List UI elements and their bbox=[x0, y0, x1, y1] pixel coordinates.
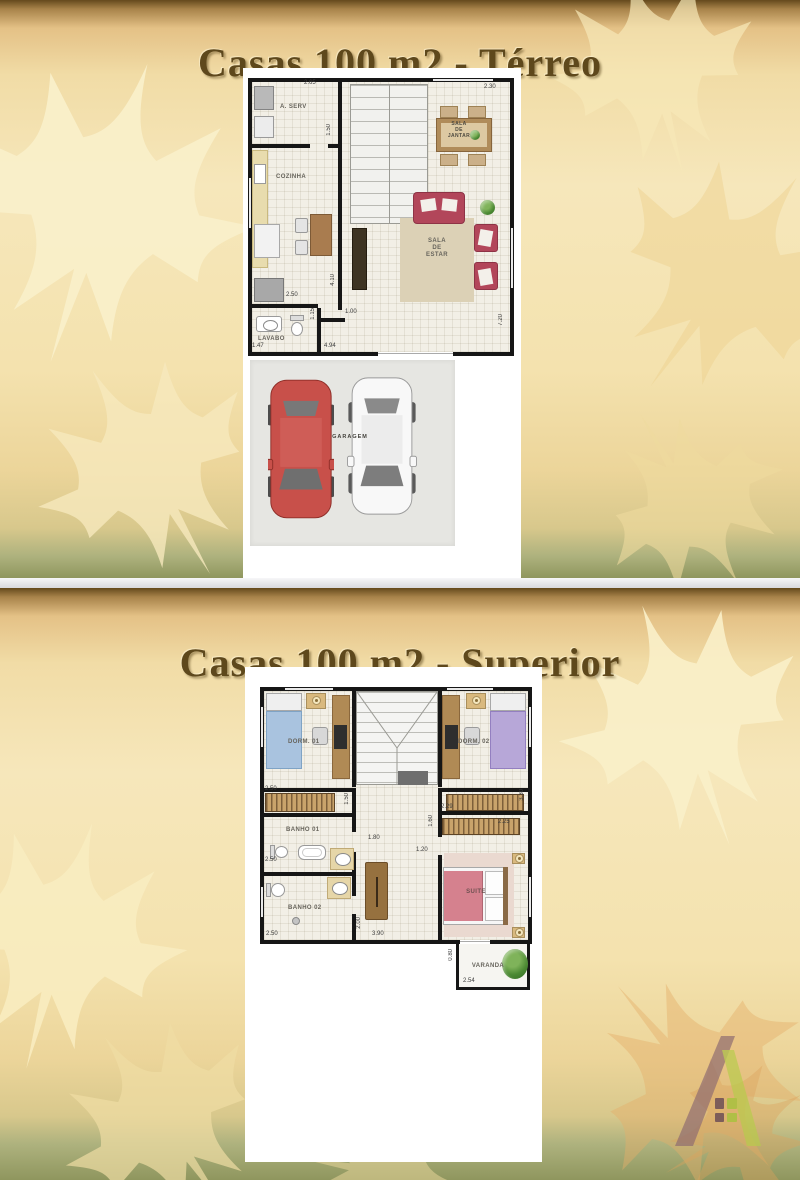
bed-dorm2 bbox=[490, 711, 526, 769]
wall bbox=[453, 352, 514, 356]
armchair bbox=[474, 262, 498, 290]
dim-label: 2.54 bbox=[463, 978, 475, 984]
wall bbox=[338, 78, 342, 310]
kitchen-sink bbox=[254, 164, 266, 184]
garage-door-opening bbox=[378, 353, 453, 354]
floorplan-panel-terreo: A. SERV COZINHA bbox=[243, 68, 521, 578]
white-car bbox=[345, 376, 419, 516]
dim-label: 2.25 bbox=[498, 819, 510, 825]
dining-chair bbox=[440, 106, 458, 118]
plant-icon bbox=[470, 130, 480, 140]
wall bbox=[510, 78, 514, 356]
wall bbox=[438, 811, 532, 815]
lavabo-sink bbox=[256, 316, 282, 332]
dining-chair bbox=[468, 154, 486, 166]
window bbox=[529, 707, 531, 747]
floorplan-superior: DORM. 01 DORM. 02 bbox=[260, 687, 532, 992]
room-label-banho1: BANHO 01 bbox=[286, 827, 320, 834]
dim-label: 1.50 bbox=[326, 124, 332, 136]
wall bbox=[317, 308, 321, 356]
poster-page: Casas 100 m2 - Térreo bbox=[0, 0, 800, 1180]
sofa bbox=[413, 192, 465, 224]
fridge bbox=[254, 224, 280, 258]
window bbox=[249, 178, 251, 228]
wardrobe-dorm2 bbox=[446, 794, 524, 811]
bed-pillow bbox=[490, 693, 526, 711]
dim-label: 1.80 bbox=[368, 835, 380, 841]
dining-chair bbox=[440, 154, 458, 166]
room-label-suite: SUITE bbox=[456, 889, 496, 896]
dim-label: 2.29 bbox=[441, 804, 453, 810]
window bbox=[433, 79, 493, 81]
slide-superior: Casas 100 m2 - Superior bbox=[0, 588, 800, 1180]
dim-label: 4.94 bbox=[324, 343, 336, 349]
room-label-varanda: VARANDA bbox=[462, 963, 514, 970]
window bbox=[285, 688, 333, 690]
wall bbox=[490, 940, 532, 944]
dim-label: 0.80 bbox=[448, 949, 454, 961]
toilet bbox=[291, 322, 303, 336]
wall bbox=[248, 304, 318, 308]
dim-label: 2.50 bbox=[265, 857, 277, 863]
room-label-banho2: BANHO 02 bbox=[288, 905, 322, 912]
bed-pillow bbox=[266, 693, 302, 711]
builder-house-logo bbox=[675, 1036, 765, 1146]
floorplan-panel-superior: DORM. 01 DORM. 02 bbox=[245, 667, 542, 1162]
hall-cabinet bbox=[365, 862, 388, 920]
kitchen-table bbox=[310, 214, 332, 256]
bathtub bbox=[298, 845, 326, 860]
bed-suite bbox=[443, 867, 508, 925]
wall bbox=[260, 872, 356, 876]
wall bbox=[248, 352, 378, 356]
dim-label: 1.15 bbox=[310, 308, 316, 320]
living-rug bbox=[400, 218, 474, 302]
kitchen-chair bbox=[295, 218, 308, 233]
dim-label: 2.50 bbox=[265, 786, 277, 792]
wall bbox=[352, 876, 356, 896]
dim-label: 1.20 bbox=[416, 847, 428, 853]
kitchen-chair bbox=[295, 240, 308, 255]
lamp-icon bbox=[472, 696, 481, 705]
tv bbox=[445, 725, 458, 749]
dim-label: 4.10 bbox=[330, 274, 336, 286]
room-label-garagem: GARAGEM bbox=[300, 434, 400, 440]
lamp-icon bbox=[515, 928, 524, 937]
wall bbox=[456, 944, 459, 990]
wall bbox=[248, 144, 310, 148]
dim-label: 2.50 bbox=[266, 931, 278, 937]
wall bbox=[438, 788, 532, 792]
laundry-tub bbox=[254, 116, 274, 138]
toilet bbox=[271, 883, 285, 897]
wall bbox=[260, 813, 356, 817]
wall bbox=[438, 855, 442, 940]
armchair bbox=[474, 224, 498, 252]
dim-label: 2.00 bbox=[356, 917, 362, 929]
dim-label: 3.30 bbox=[519, 789, 525, 801]
dim-label: 1.60 bbox=[428, 815, 434, 827]
wall bbox=[321, 318, 345, 322]
toilet-tank bbox=[290, 315, 304, 321]
stair-landing bbox=[398, 771, 428, 785]
tv bbox=[334, 725, 347, 749]
sideboard bbox=[352, 228, 367, 290]
shower-head bbox=[292, 917, 300, 925]
dim-label: 3.90 bbox=[372, 931, 384, 937]
lamp-icon bbox=[312, 696, 321, 705]
dim-label: 1.00 bbox=[345, 309, 357, 315]
room-label-sala-estar: SALA DE ESTAR bbox=[416, 238, 458, 259]
window bbox=[261, 887, 263, 917]
room-label-dorm2: DORM. 02 bbox=[458, 739, 490, 746]
garage-area: GARAGEM bbox=[250, 360, 455, 546]
room-label-dorm1: DORM. 01 bbox=[288, 739, 320, 746]
wall bbox=[260, 940, 460, 944]
dim-label: 1.50 bbox=[344, 793, 350, 805]
lamp-icon bbox=[515, 854, 524, 863]
red-car bbox=[268, 372, 334, 526]
slide-terreo: Casas 100 m2 - Térreo bbox=[0, 0, 800, 578]
dim-label: 2.50 bbox=[286, 292, 298, 298]
wall bbox=[328, 144, 342, 148]
window bbox=[529, 877, 531, 917]
window bbox=[261, 707, 263, 747]
window bbox=[447, 688, 493, 690]
slide-divider bbox=[0, 578, 800, 588]
washing-machine bbox=[254, 86, 274, 110]
plant-icon bbox=[480, 200, 495, 215]
dining-chair bbox=[468, 106, 486, 118]
varanda-door-opening bbox=[460, 941, 490, 942]
sink bbox=[332, 882, 348, 895]
wardrobe-dorm1 bbox=[265, 793, 335, 812]
dim-label: 2.65 bbox=[304, 80, 316, 86]
window bbox=[511, 228, 513, 288]
room-label-aserv: A. SERV bbox=[280, 104, 307, 111]
stove bbox=[254, 278, 284, 302]
dim-label: 7.20 bbox=[498, 314, 504, 326]
dim-label: 1.47 bbox=[252, 343, 264, 349]
wall bbox=[352, 792, 356, 832]
dim-label: 2.30 bbox=[484, 84, 496, 90]
room-label-lavabo: LAVABO bbox=[258, 336, 285, 343]
sink bbox=[335, 853, 351, 866]
room-label-cozinha: COZINHA bbox=[276, 174, 306, 181]
floorplan-terreo: A. SERV COZINHA bbox=[248, 78, 514, 356]
wall bbox=[456, 987, 530, 990]
